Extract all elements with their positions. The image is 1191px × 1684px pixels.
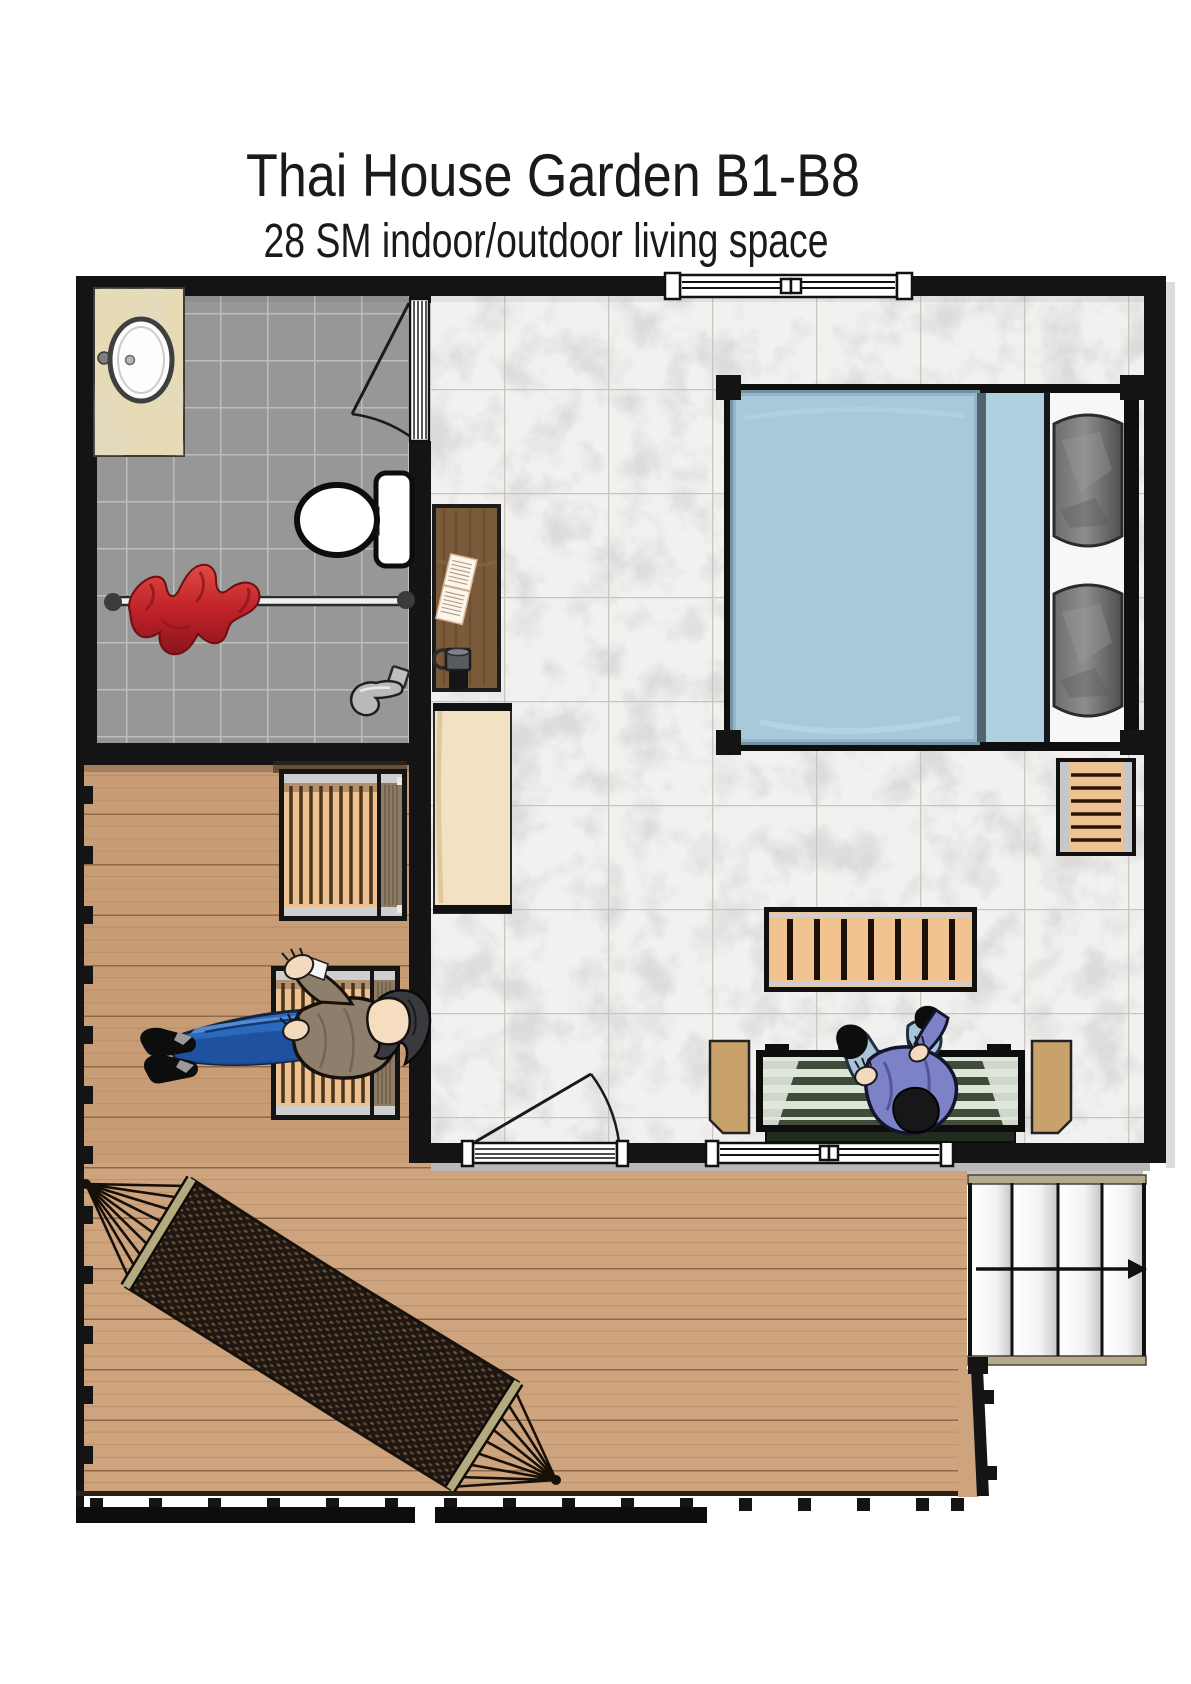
svg-text:Thai House Garden B1-B8: Thai House Garden B1-B8 [246,142,860,209]
svg-text:28 SM indoor/outdoor living sp: 28 SM indoor/outdoor living space [264,215,829,268]
